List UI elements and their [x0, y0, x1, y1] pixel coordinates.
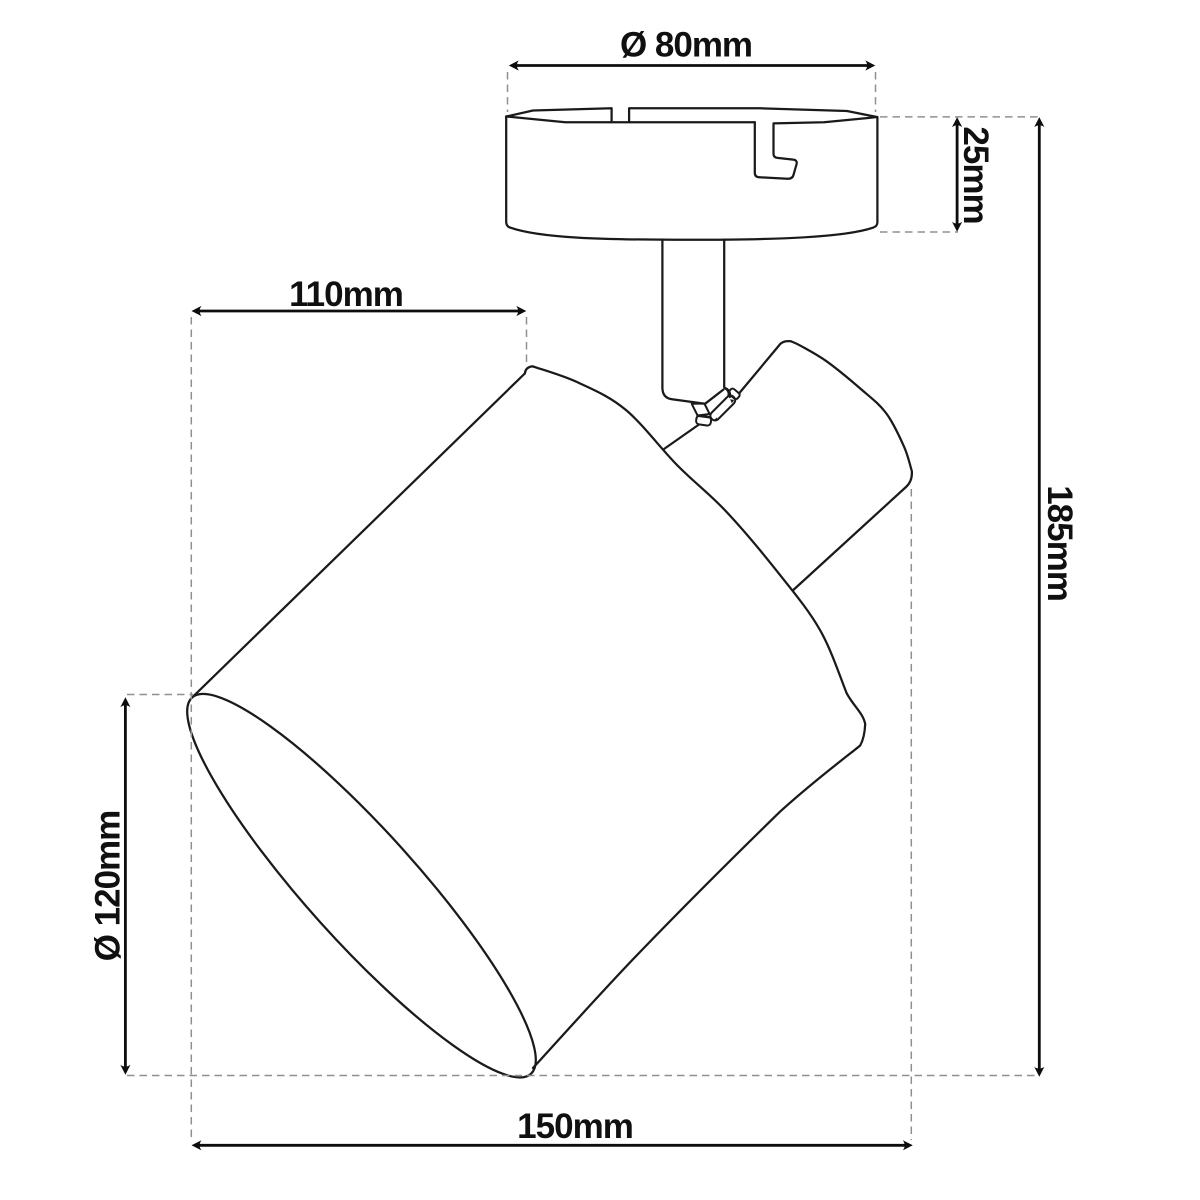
svg-text:110mm: 110mm: [289, 275, 403, 314]
svg-text:Ø 120mm: Ø 120mm: [88, 811, 127, 962]
svg-text:150mm: 150mm: [517, 1107, 633, 1146]
svg-text:185mm: 185mm: [1040, 485, 1079, 601]
svg-text:Ø 80mm: Ø 80mm: [620, 26, 752, 65]
svg-text:25mm: 25mm: [956, 126, 995, 223]
